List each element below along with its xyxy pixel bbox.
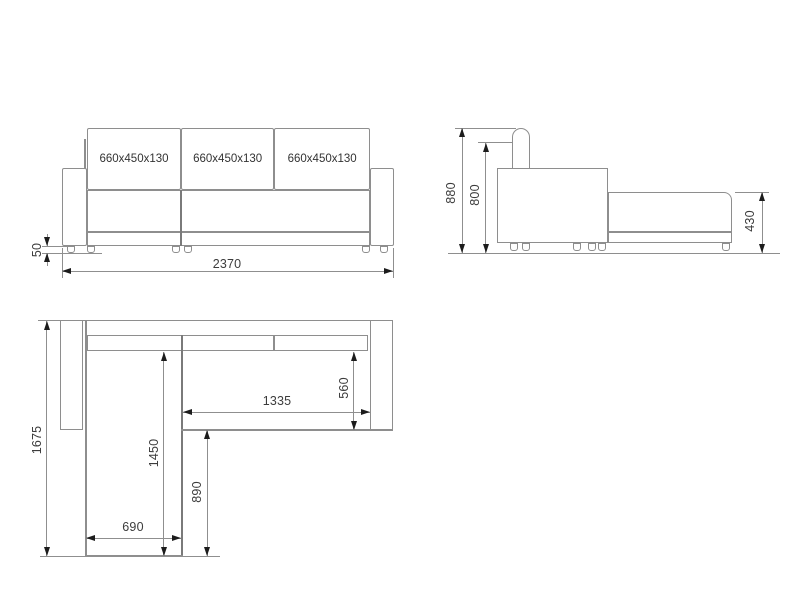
dim-seat-depth: 560 [0,0,800,600]
top-view: 1675 1450 890 690 1335 [0,0,800,600]
dim-label: 560 [337,377,351,398]
dimension-line [353,352,354,430]
sofa-dimension-drawing: 660x450x130 660x450x130 660x450x130 2370 [0,0,800,600]
arrowhead [351,421,357,430]
arrowhead [351,352,357,361]
